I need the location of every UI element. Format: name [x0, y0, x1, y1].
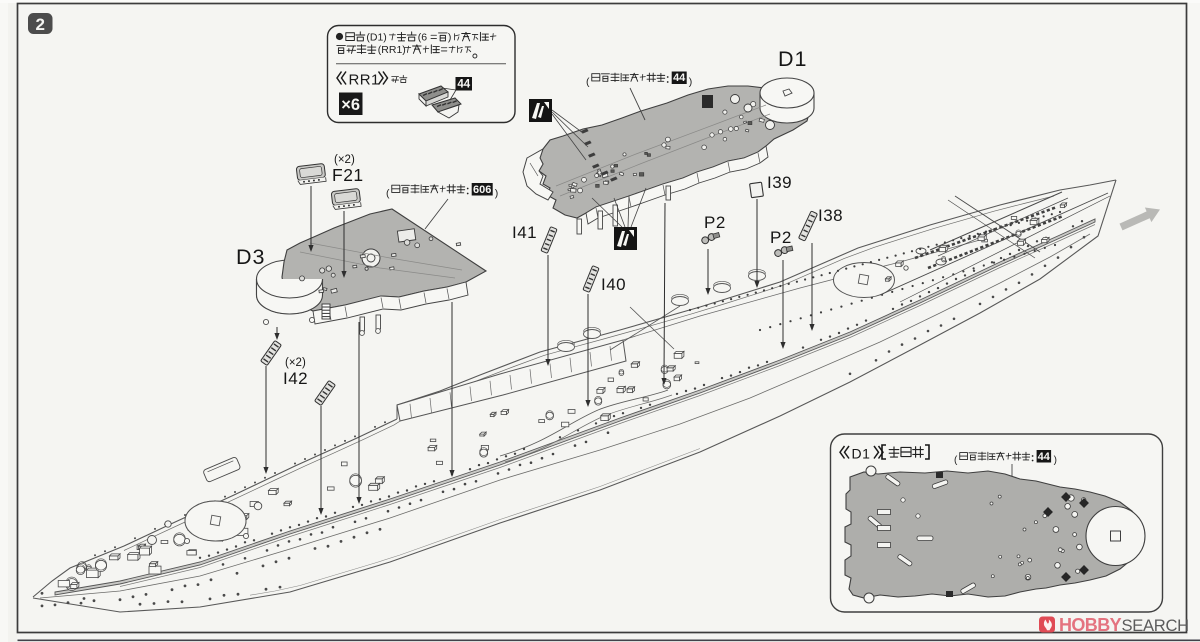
svg-text:F21: F21 — [332, 165, 364, 185]
svg-text:44: 44 — [673, 72, 686, 84]
svg-text:606: 606 — [473, 184, 491, 196]
svg-text:P2: P2 — [770, 228, 792, 247]
svg-text:): ) — [689, 76, 693, 88]
svg-text:(RR1): (RR1) — [378, 44, 406, 56]
svg-text:RR1: RR1 — [349, 72, 380, 89]
svg-text:D1: D1 — [852, 446, 871, 462]
svg-text:I41: I41 — [512, 223, 537, 242]
svg-text:): ) — [1054, 455, 1057, 466]
svg-text:D1: D1 — [778, 47, 807, 71]
svg-text:I40: I40 — [601, 275, 626, 294]
svg-text:44: 44 — [457, 79, 470, 91]
svg-text:I38: I38 — [818, 206, 843, 225]
svg-text:HOBBY: HOBBY — [1059, 615, 1122, 635]
svg-text:(×2): (×2) — [285, 357, 306, 369]
svg-text:SEARCH: SEARCH — [1122, 616, 1189, 635]
svg-text:P2: P2 — [704, 213, 726, 232]
svg-text:2: 2 — [35, 15, 44, 34]
svg-text:): ) — [448, 32, 452, 44]
svg-text:44: 44 — [1038, 451, 1051, 463]
svg-text:I39: I39 — [767, 173, 792, 192]
svg-text:(: ( — [386, 188, 390, 200]
svg-text:(6: (6 — [418, 32, 427, 44]
svg-text:×6: ×6 — [341, 96, 360, 114]
svg-text:(: ( — [586, 76, 590, 88]
svg-text:I42: I42 — [283, 369, 308, 388]
svg-text:(D1): (D1) — [366, 32, 386, 44]
svg-text:D3: D3 — [236, 245, 265, 269]
svg-text:): ) — [495, 188, 499, 200]
